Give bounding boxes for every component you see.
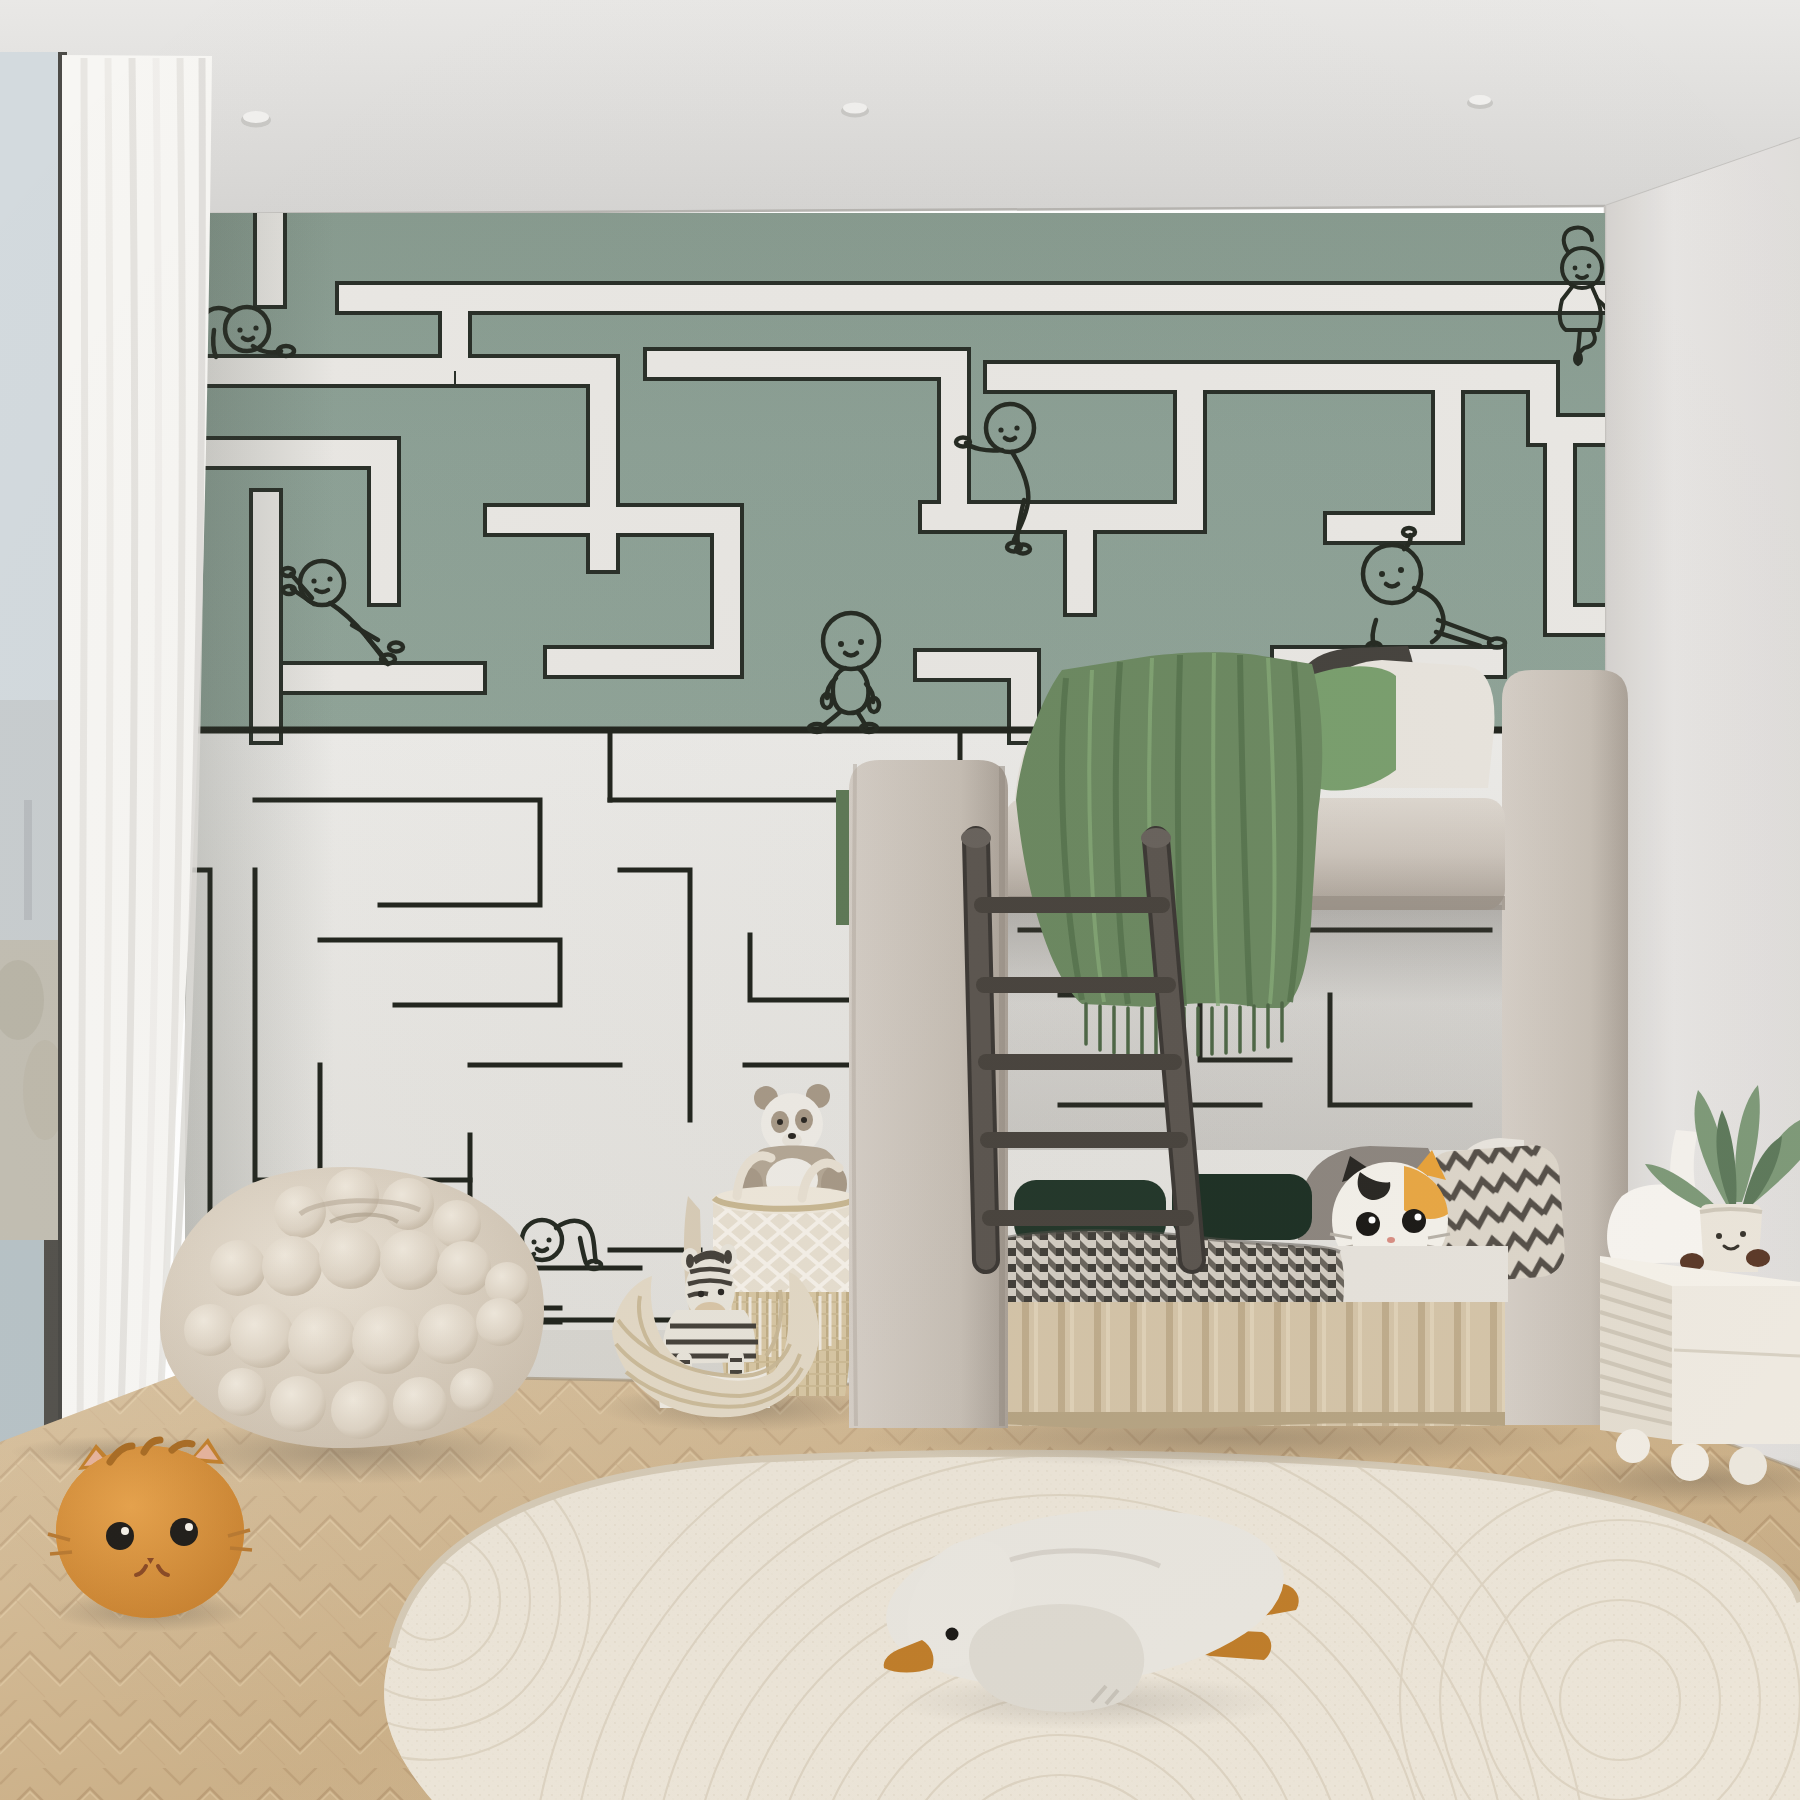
kids-bedroom-scene bbox=[0, 0, 1800, 1800]
vignette bbox=[0, 0, 1800, 1800]
room-render bbox=[0, 0, 1800, 1800]
